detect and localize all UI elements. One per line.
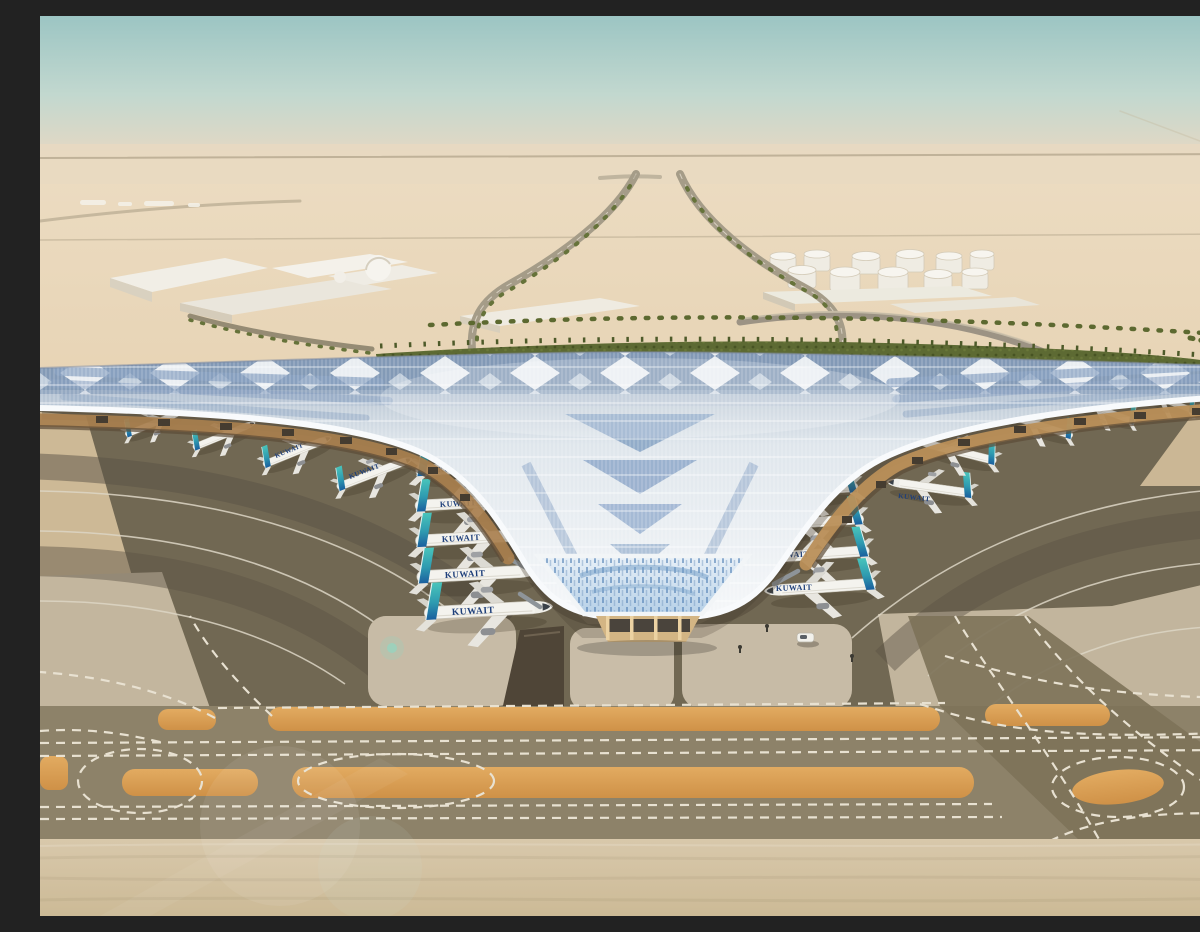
aircraft-livery-title: KUWAIT <box>442 532 481 544</box>
aircraft-livery-title: KUWAIT <box>445 568 486 580</box>
airport-aerial-rendering: KUWAIT KUWAIT KUWAIT KUWAIT KUWAIT KUWAI… <box>40 16 1200 916</box>
stand-pad-right <box>682 624 852 708</box>
aircraft-livery-title: KUWAIT <box>776 583 813 593</box>
